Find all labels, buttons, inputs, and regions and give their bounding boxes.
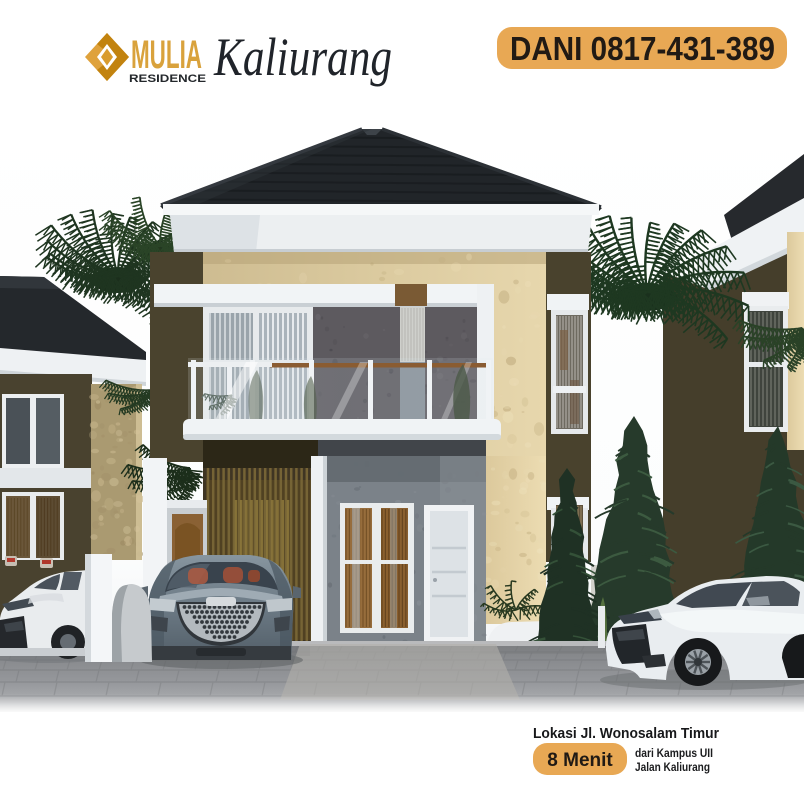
svg-text:dari Kampus UII: dari Kampus UII — [635, 746, 713, 760]
svg-text:Kaliurang: Kaliurang — [213, 27, 392, 87]
svg-text:8 Menit: 8 Menit — [547, 750, 613, 771]
svg-text:DANI 0817-431-389: DANI 0817-431-389 — [510, 30, 775, 67]
svg-text:RESIDENCE: RESIDENCE — [129, 73, 206, 85]
svg-text:Lokasi Jl. Wonosalam Timur: Lokasi Jl. Wonosalam Timur — [533, 725, 719, 742]
svg-text:Jalan Kaliurang: Jalan Kaliurang — [635, 760, 710, 774]
svg-text:MULIA: MULIA — [131, 33, 202, 77]
